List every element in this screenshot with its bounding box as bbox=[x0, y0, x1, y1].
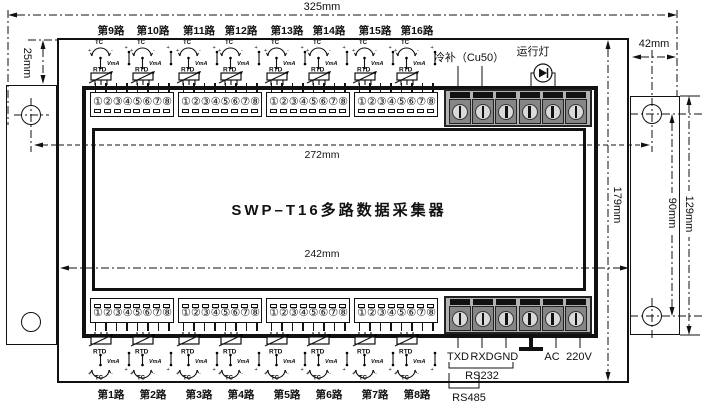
screw-circle bbox=[498, 311, 514, 327]
terminal-tick bbox=[344, 322, 346, 331]
terminal-tick bbox=[369, 322, 371, 331]
svg-text:-: - bbox=[241, 48, 243, 54]
terminal-number: ③ bbox=[289, 308, 299, 319]
screw-slot bbox=[505, 313, 508, 325]
channel-label: 第5路 bbox=[266, 389, 308, 401]
sensor-symbol-tc-rtd-vma: RTD VmA + +- TC bbox=[264, 332, 310, 380]
terminal-number: ⑤ bbox=[133, 308, 143, 319]
svg-text:-: - bbox=[111, 48, 113, 54]
terminal-tick bbox=[432, 322, 434, 331]
terminal-numbers: ①②③④⑤⑥⑦⑧ bbox=[93, 308, 171, 319]
svg-text:-: - bbox=[417, 371, 419, 377]
cold-junction-label: 冷补（Cu50） bbox=[426, 52, 512, 64]
screw-circle bbox=[452, 311, 468, 327]
terminal-number: ⑦ bbox=[416, 308, 426, 319]
screw-head bbox=[449, 99, 471, 124]
svg-text:-: - bbox=[417, 48, 419, 54]
svg-text:VmA: VmA bbox=[413, 61, 426, 67]
sensor-symbol-tc-rtd-vma: RTD VmA + +- TC bbox=[394, 332, 440, 380]
terminal-number: ⑥ bbox=[142, 308, 152, 319]
terminal-number: ② bbox=[191, 308, 201, 319]
screw-terminal bbox=[542, 92, 564, 124]
svg-text:-: - bbox=[111, 371, 113, 377]
terminal-slot bbox=[280, 109, 287, 113]
terminal-number: ④ bbox=[387, 97, 397, 108]
terminal-numbers: ①②③④⑤⑥⑦⑧ bbox=[181, 308, 259, 319]
svg-text:+: + bbox=[130, 371, 133, 377]
svg-text:VmA: VmA bbox=[149, 359, 162, 365]
svg-text:+: + bbox=[167, 367, 170, 373]
terminal-number: ③ bbox=[201, 308, 211, 319]
svg-text:TC: TC bbox=[313, 40, 322, 46]
svg-text:VmA: VmA bbox=[195, 61, 208, 67]
terminal-tick bbox=[390, 322, 392, 331]
screw-head bbox=[565, 99, 587, 124]
svg-text:VmA: VmA bbox=[283, 61, 296, 67]
terminal-tick-row bbox=[354, 322, 438, 331]
screw-circle bbox=[452, 104, 468, 120]
terminal-tick bbox=[147, 322, 149, 331]
terminal-slot bbox=[329, 109, 336, 113]
terminal-number: ⑧ bbox=[162, 308, 172, 319]
svg-text:TC: TC bbox=[359, 40, 368, 46]
terminal-bar bbox=[496, 299, 516, 305]
screw-circle bbox=[568, 311, 584, 327]
terminal-number: ⑦ bbox=[240, 308, 250, 319]
terminal-slot bbox=[231, 109, 238, 113]
terminal-number: ② bbox=[367, 97, 377, 108]
channel-label: 第9路 bbox=[90, 25, 132, 37]
svg-text:+: + bbox=[213, 367, 216, 373]
terminal-number: ⑤ bbox=[133, 97, 143, 108]
svg-text:+: + bbox=[352, 371, 355, 377]
terminal-number: ④ bbox=[299, 308, 309, 319]
terminal-block: ①②③④⑤⑥⑦⑧ bbox=[354, 298, 438, 323]
terminal-tick bbox=[168, 322, 170, 331]
dim-flange-width: 42mm bbox=[632, 38, 676, 50]
channel-label: 第7路 bbox=[354, 389, 396, 401]
dim-top-inset: 25mm bbox=[21, 43, 33, 83]
svg-text:-: - bbox=[241, 371, 243, 377]
terminal-block: ①②③④⑤⑥⑦⑧ bbox=[266, 92, 350, 117]
svg-text:TC: TC bbox=[271, 40, 280, 46]
screw-terminal bbox=[472, 299, 494, 331]
sensor-symbol-tc-rtd-vma: RTD VmA + +- TC bbox=[218, 332, 264, 380]
terminal-numbers: ①②③④⑤⑥⑦⑧ bbox=[357, 308, 435, 319]
terminal-number: ③ bbox=[201, 97, 211, 108]
channel-label: 第1路 bbox=[90, 389, 132, 401]
svg-text:+: + bbox=[352, 48, 355, 54]
screw-head bbox=[519, 306, 541, 331]
screw-terminal bbox=[519, 299, 541, 331]
terminal-tick bbox=[323, 322, 325, 331]
terminal-slot bbox=[368, 109, 375, 113]
sensor-symbol-tc-rtd-vma: RTD VmA + +- TC bbox=[352, 332, 398, 380]
terminal-tick bbox=[281, 322, 283, 331]
terminal-slot bbox=[339, 109, 346, 113]
svg-text:+: + bbox=[130, 48, 133, 54]
screw-circle bbox=[475, 104, 491, 120]
terminal-slots bbox=[269, 109, 347, 113]
svg-text:+: + bbox=[343, 367, 346, 373]
svg-text:+: + bbox=[167, 45, 170, 51]
terminal-tick-row bbox=[266, 322, 350, 331]
svg-text:TC: TC bbox=[271, 376, 280, 381]
terminal-numbers: ①②③④⑤⑥⑦⑧ bbox=[269, 97, 347, 108]
terminal-tick bbox=[422, 322, 424, 331]
terminal-block: ①②③④⑤⑥⑦⑧ bbox=[354, 92, 438, 117]
svg-text:TC: TC bbox=[95, 40, 104, 46]
terminal-tick bbox=[126, 322, 128, 331]
svg-text:+: + bbox=[343, 45, 346, 51]
terminal-slots bbox=[181, 109, 259, 113]
screw-head bbox=[542, 306, 564, 331]
terminal-number: ① bbox=[357, 97, 367, 108]
svg-text:TC: TC bbox=[225, 376, 234, 381]
terminal-number: ② bbox=[191, 97, 201, 108]
sensor-symbol-tc-rtd-vma: TC +- VmA + RTD bbox=[130, 37, 176, 85]
terminal-bar bbox=[473, 299, 493, 305]
rs232-label: RS232 bbox=[459, 370, 505, 382]
channel-label: 第4路 bbox=[220, 389, 262, 401]
terminal-number: ⑦ bbox=[240, 97, 250, 108]
terminal-slot bbox=[192, 109, 199, 113]
terminal-number: ⑤ bbox=[309, 97, 319, 108]
screw-terminal bbox=[519, 92, 541, 124]
terminal-number: ⑥ bbox=[406, 97, 416, 108]
channel-label: 第10路 bbox=[132, 25, 174, 37]
svg-text:-: - bbox=[153, 48, 155, 54]
channel-label: 第15路 bbox=[354, 25, 396, 37]
screw-slot bbox=[528, 313, 531, 325]
sensor-symbol-tc-rtd-vma: RTD VmA + +- TC bbox=[88, 332, 134, 380]
dim-flange-height: 129mm bbox=[683, 191, 695, 237]
terminal-slot bbox=[153, 109, 160, 113]
svg-text:TC: TC bbox=[137, 40, 146, 46]
terminal-tick bbox=[235, 322, 237, 331]
svg-text:+: + bbox=[125, 45, 128, 51]
terminal-slot bbox=[221, 109, 228, 113]
terminal-number: ② bbox=[367, 308, 377, 319]
terminal-tick bbox=[137, 322, 139, 331]
channel-label: 第14路 bbox=[308, 25, 350, 37]
terminal-slot bbox=[388, 109, 395, 113]
terminal-slot bbox=[309, 109, 316, 113]
terminal-number: ⑧ bbox=[162, 97, 172, 108]
terminal-tick bbox=[105, 322, 107, 331]
terminal-slot bbox=[202, 109, 209, 113]
terminal-number: ⑦ bbox=[328, 308, 338, 319]
terminal-tick bbox=[158, 322, 160, 331]
terminal-number: ④ bbox=[123, 308, 133, 319]
rs485-label: RS485 bbox=[446, 392, 492, 404]
terminal-number: ⑥ bbox=[406, 308, 416, 319]
svg-text:-: - bbox=[287, 48, 289, 54]
terminal-number: ⑤ bbox=[309, 308, 319, 319]
terminal-slot bbox=[300, 109, 307, 113]
sensor-symbol-tc-rtd-vma: TC +- VmA + RTD bbox=[176, 37, 222, 85]
channel-label: 第11路 bbox=[178, 25, 220, 37]
channel-label: 第13路 bbox=[266, 25, 308, 37]
sensor-symbol-tc-rtd-vma: TC +- VmA + RTD bbox=[264, 37, 310, 85]
svg-text:+: + bbox=[264, 48, 267, 54]
terminal-slot bbox=[94, 109, 101, 113]
svg-text:-: - bbox=[199, 48, 201, 54]
screw-slot bbox=[505, 106, 508, 118]
terminal-number: ⑥ bbox=[318, 97, 328, 108]
terminal-number: ① bbox=[181, 97, 191, 108]
terminal-number: ② bbox=[103, 308, 113, 319]
terminal-bar bbox=[566, 299, 586, 305]
svg-text:+: + bbox=[389, 45, 392, 51]
sensor-symbol-tc-rtd-vma: RTD VmA + +- TC bbox=[176, 332, 222, 380]
terminal-bar bbox=[450, 92, 470, 98]
svg-text:+: + bbox=[431, 45, 434, 51]
terminal-bar bbox=[543, 299, 563, 305]
terminal-number: ⑦ bbox=[152, 308, 162, 319]
dim-body-height: 179mm bbox=[611, 182, 623, 228]
svg-text:+: + bbox=[301, 45, 304, 51]
terminal-number: ③ bbox=[113, 97, 123, 108]
svg-text:+: + bbox=[431, 367, 434, 373]
terminal-numbers: ①②③④⑤⑥⑦⑧ bbox=[181, 97, 259, 108]
terminal-slot bbox=[397, 109, 404, 113]
screw-terminal bbox=[495, 299, 517, 331]
terminal-number: ⑥ bbox=[230, 97, 240, 108]
terminal-bar bbox=[520, 299, 540, 305]
terminal-number: ⑧ bbox=[338, 97, 348, 108]
terminal-slot bbox=[143, 109, 150, 113]
terminal-number: ⑤ bbox=[221, 308, 231, 319]
screw-head bbox=[472, 306, 494, 331]
terminal-number: ③ bbox=[377, 97, 387, 108]
svg-text:+: + bbox=[394, 371, 397, 377]
mounting-hole bbox=[642, 306, 662, 326]
svg-text:TC: TC bbox=[359, 376, 368, 381]
screw-circle bbox=[568, 104, 584, 120]
terminal-number: ① bbox=[269, 97, 279, 108]
svg-text:VmA: VmA bbox=[107, 359, 120, 365]
svg-text:TC: TC bbox=[225, 40, 234, 46]
svg-text:TC: TC bbox=[183, 40, 192, 46]
svg-text:VmA: VmA bbox=[237, 61, 250, 67]
terminal-number: ② bbox=[279, 308, 289, 319]
terminal-number: ⑧ bbox=[426, 308, 436, 319]
channel-label: 第2路 bbox=[132, 389, 174, 401]
terminal-number: ④ bbox=[123, 97, 133, 108]
terminal-slot bbox=[133, 109, 140, 113]
svg-text:TC: TC bbox=[401, 376, 410, 381]
dim-body-width: 242mm bbox=[296, 248, 348, 260]
terminal-tick bbox=[95, 322, 97, 331]
svg-text:-: - bbox=[199, 371, 201, 377]
terminal-slot bbox=[319, 109, 326, 113]
voltage-label: 220V bbox=[560, 351, 598, 363]
terminal-number: ① bbox=[181, 308, 191, 319]
terminal-number: ② bbox=[103, 97, 113, 108]
terminal-tick-row bbox=[178, 322, 262, 331]
terminal-tick bbox=[292, 322, 294, 331]
screw-slot bbox=[551, 313, 554, 325]
svg-text:VmA: VmA bbox=[195, 359, 208, 365]
svg-text:VmA: VmA bbox=[107, 61, 120, 67]
terminal-block: ①②③④⑤⑥⑦⑧ bbox=[178, 298, 262, 323]
channel-label: 第8路 bbox=[396, 389, 438, 401]
svg-text:TC: TC bbox=[95, 376, 104, 381]
terminal-number: ① bbox=[93, 308, 103, 319]
svg-text:+: + bbox=[176, 48, 179, 54]
svg-text:VmA: VmA bbox=[237, 359, 250, 365]
terminal-number: ① bbox=[269, 308, 279, 319]
mounting-hole bbox=[21, 312, 41, 332]
dim-hole-vspan: 90mm bbox=[666, 193, 678, 233]
screw-slot bbox=[482, 313, 485, 325]
screw-slot bbox=[482, 106, 485, 118]
screw-terminal bbox=[495, 92, 517, 124]
svg-text:+: + bbox=[125, 367, 128, 373]
svg-text:+: + bbox=[88, 48, 91, 54]
svg-text:VmA: VmA bbox=[325, 61, 338, 67]
terminal-number: ⑧ bbox=[250, 97, 260, 108]
svg-text:-: - bbox=[375, 371, 377, 377]
terminal-block: ①②③④⑤⑥⑦⑧ bbox=[90, 298, 174, 323]
terminal-slot bbox=[378, 109, 385, 113]
terminal-tick bbox=[225, 322, 227, 331]
terminal-number: ③ bbox=[289, 97, 299, 108]
terminal-number: ① bbox=[93, 97, 103, 108]
terminal-bar bbox=[566, 92, 586, 98]
terminal-numbers: ①②③④⑤⑥⑦⑧ bbox=[357, 97, 435, 108]
terminal-block: ①②③④⑤⑥⑦⑧ bbox=[178, 92, 262, 117]
terminal-numbers: ①②③④⑤⑥⑦⑧ bbox=[269, 308, 347, 319]
terminal-slot bbox=[407, 109, 414, 113]
terminal-bar bbox=[450, 299, 470, 305]
screw-head bbox=[519, 99, 541, 124]
terminal-slot bbox=[182, 109, 189, 113]
terminal-slot bbox=[114, 109, 121, 113]
terminal-block: ①②③④⑤⑥⑦⑧ bbox=[90, 92, 174, 117]
terminal-number: ⑥ bbox=[142, 97, 152, 108]
sensor-symbol-tc-rtd-vma: RTD VmA + +- TC bbox=[130, 332, 176, 380]
svg-text:TC: TC bbox=[183, 376, 192, 381]
screw-head bbox=[495, 99, 517, 124]
sensor-symbol-tc-rtd-vma: TC +- VmA + RTD bbox=[306, 37, 352, 85]
terminal-slot bbox=[270, 109, 277, 113]
terminal-number: ⑧ bbox=[250, 308, 260, 319]
screw-terminal bbox=[449, 299, 471, 331]
svg-text:+: + bbox=[306, 371, 309, 377]
terminal-slot bbox=[290, 109, 297, 113]
terminal-tick bbox=[401, 322, 403, 331]
svg-text:VmA: VmA bbox=[413, 359, 426, 365]
screw-head bbox=[495, 306, 517, 331]
screw-circle bbox=[475, 311, 491, 327]
terminal-tick bbox=[246, 322, 248, 331]
terminal-number: ④ bbox=[387, 308, 397, 319]
terminal-tick bbox=[334, 322, 336, 331]
terminal-number: ⑥ bbox=[230, 308, 240, 319]
screw-terminal bbox=[542, 299, 564, 331]
svg-text:+: + bbox=[301, 367, 304, 373]
terminal-number: ② bbox=[279, 97, 289, 108]
screw-terminal bbox=[449, 92, 471, 124]
terminal-numbers: ①②③④⑤⑥⑦⑧ bbox=[93, 97, 171, 108]
svg-text:VmA: VmA bbox=[283, 359, 296, 365]
sensor-symbol-tc-rtd-vma: TC +- VmA + RTD bbox=[218, 37, 264, 85]
terminal-number: ⑥ bbox=[318, 308, 328, 319]
svg-text:+: + bbox=[389, 367, 392, 373]
power-terminal-block bbox=[444, 296, 592, 334]
screw-slot bbox=[551, 106, 554, 118]
mounting-hole bbox=[642, 104, 662, 124]
gnd-label: GND bbox=[489, 351, 523, 363]
terminal-slots bbox=[357, 109, 435, 113]
screw-head bbox=[449, 306, 471, 331]
terminal-tick bbox=[313, 322, 315, 331]
svg-text:+: + bbox=[88, 371, 91, 377]
svg-text:+: + bbox=[394, 48, 397, 54]
terminal-number: ⑦ bbox=[416, 97, 426, 108]
terminal-tick bbox=[256, 322, 258, 331]
terminal-tick bbox=[183, 322, 185, 331]
screw-slot bbox=[528, 106, 531, 118]
screw-slot bbox=[575, 106, 578, 118]
svg-text:-: - bbox=[375, 48, 377, 54]
terminal-number: ④ bbox=[211, 97, 221, 108]
terminal-tick bbox=[359, 322, 361, 331]
terminal-number: ④ bbox=[299, 97, 309, 108]
terminal-number: ① bbox=[357, 308, 367, 319]
terminal-number: ③ bbox=[113, 308, 123, 319]
svg-text:+: + bbox=[306, 48, 309, 54]
screw-head bbox=[472, 99, 494, 124]
terminal-slot bbox=[251, 109, 258, 113]
terminal-slots bbox=[93, 109, 171, 113]
terminal-tick bbox=[380, 322, 382, 331]
svg-text:+: + bbox=[255, 367, 258, 373]
terminal-tick-row bbox=[90, 322, 174, 331]
terminal-slot bbox=[241, 109, 248, 113]
dim-hole-span: 272mm bbox=[296, 149, 348, 161]
channel-label: 第3路 bbox=[178, 389, 220, 401]
screw-circle bbox=[498, 104, 514, 120]
terminal-bar bbox=[543, 92, 563, 98]
terminal-tick bbox=[204, 322, 206, 331]
screw-head bbox=[565, 306, 587, 331]
terminal-slot bbox=[124, 109, 131, 113]
svg-text:+: + bbox=[213, 45, 216, 51]
screw-head bbox=[542, 99, 564, 124]
svg-text:TC: TC bbox=[401, 40, 410, 46]
screw-slot bbox=[459, 313, 462, 325]
svg-text:+: + bbox=[218, 48, 221, 54]
terminal-block: ①②③④⑤⑥⑦⑧ bbox=[266, 298, 350, 323]
terminal-number: ⑤ bbox=[397, 308, 407, 319]
screw-terminal bbox=[565, 299, 587, 331]
svg-text:VmA: VmA bbox=[149, 61, 162, 67]
screw-circle bbox=[545, 104, 561, 120]
terminal-slot bbox=[427, 109, 434, 113]
screw-slot bbox=[575, 313, 578, 325]
screw-terminal bbox=[472, 92, 494, 124]
run-light-label: 运行灯 bbox=[505, 46, 561, 58]
terminal-tick bbox=[302, 322, 304, 331]
terminal-slot bbox=[417, 109, 424, 113]
svg-text:TC: TC bbox=[313, 376, 322, 381]
terminal-number: ⑦ bbox=[328, 97, 338, 108]
terminal-slot bbox=[104, 109, 111, 113]
terminal-tick bbox=[411, 322, 413, 331]
